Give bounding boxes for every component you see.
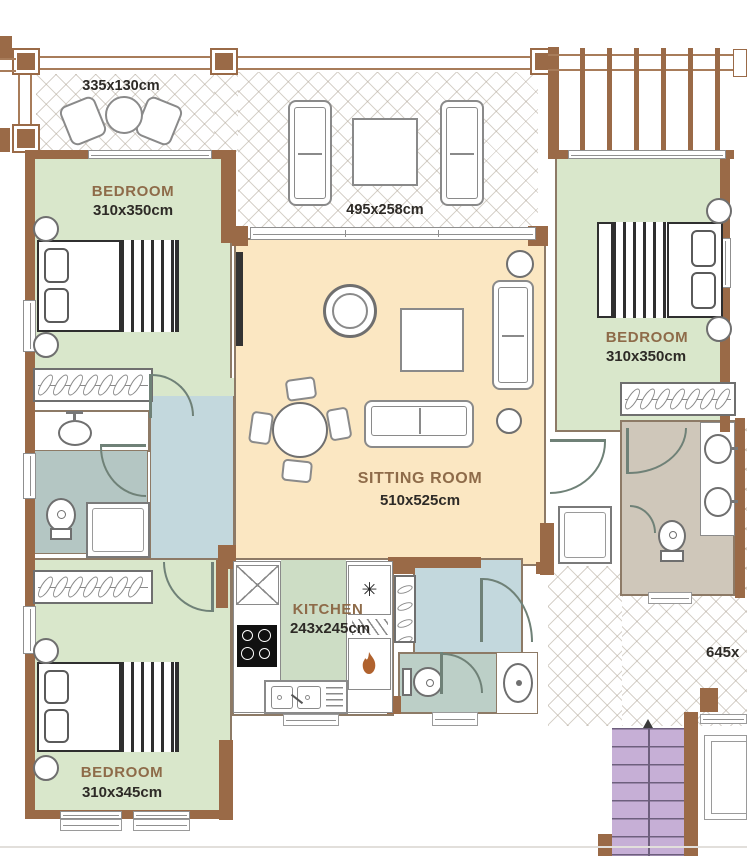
pergola-bar-1 (580, 48, 585, 152)
dining-chair-s (281, 458, 313, 483)
basin-right-2-tap-icon (730, 500, 738, 503)
window-sill-2 (133, 819, 190, 831)
wall-stairs-left-chunk (598, 834, 612, 856)
terrace-right-floor-b (622, 596, 747, 726)
dining-table (272, 402, 328, 458)
door-entrance-swing (483, 578, 533, 642)
dining-chair-w (248, 411, 274, 446)
br-room-shelf (700, 714, 747, 724)
wall-bottom-bedroom-bl (25, 810, 233, 819)
hall-closet (394, 575, 416, 643)
railing-left-side (18, 74, 32, 128)
basin-right-1 (704, 434, 732, 464)
bath-right-bench (648, 592, 692, 604)
plant-pot-2 (496, 408, 522, 434)
nightstand-r-2 (706, 316, 732, 342)
nightstand-bl-1 (33, 638, 59, 664)
guest-sink (503, 663, 533, 703)
room-dims-bedroom-r: 310x350cm (606, 348, 686, 365)
railing-top-center (238, 56, 536, 70)
pergola-bar-4 (661, 48, 666, 152)
toilet-left-bath (46, 498, 76, 532)
nightstand-bl-2 (33, 755, 59, 781)
toilet-right-bath (658, 520, 686, 552)
flame-icon (361, 652, 377, 679)
balcony-c-sofa-right (440, 100, 484, 206)
room-label-bedroom-tl: BEDROOM (92, 183, 175, 200)
railing-post-4 (14, 126, 38, 151)
pergola-bar-6 (715, 48, 720, 152)
wall-wc-right-chunk (536, 562, 553, 574)
railing-post-2 (212, 50, 236, 73)
railing-top-left (36, 56, 218, 70)
sitting-square-table (400, 308, 464, 372)
wardrobe-bedroom-bl (33, 570, 153, 604)
pergola-bar-2 (607, 48, 612, 152)
plant-pot-1 (506, 250, 534, 278)
wall-right-bath (735, 418, 745, 598)
pergola-bar-5 (688, 48, 693, 152)
pergola-left-wall (548, 47, 559, 155)
pergola-end-post (733, 49, 747, 77)
wall-terrace-chunk (700, 688, 718, 712)
balcony-tl-dims: 335x130cm (82, 78, 159, 94)
room-label-bedroom-r: BEDROOM (606, 329, 689, 346)
window-bedroom-tl-top (88, 150, 212, 159)
room-label-bedroom-bl: BEDROOM (81, 764, 164, 781)
sink-left-bath (58, 420, 92, 446)
window-bedroom-bl-bottom-2 (133, 811, 190, 819)
door-bedroom-r-swing (550, 442, 606, 494)
br-room-table (704, 735, 747, 820)
window-sitting-top (250, 227, 536, 240)
wall-stairs-right (684, 712, 698, 856)
room-dims-bedroom-bl: 310x345cm (82, 784, 162, 801)
window-bedroom-bl-bottom-1 (60, 811, 122, 819)
pergola-bar-3 (634, 48, 639, 152)
dining-chair-n (285, 376, 318, 402)
railing-stub-line-b (0, 70, 16, 72)
loveseat (364, 400, 474, 448)
railing-stub-left-b (0, 128, 10, 152)
wall-bedroom-bl-kitchen (216, 560, 228, 608)
bed-bedroom-bl (37, 662, 179, 752)
tap-left-bath-icon (73, 412, 76, 422)
cooktop (237, 625, 277, 667)
stairs-up-arrow-icon (643, 719, 653, 728)
shower-left-bath (86, 502, 150, 558)
window-sill-1 (60, 819, 122, 831)
shower-right-bath (558, 506, 612, 564)
balcony-c-sofa-left (288, 100, 332, 206)
terrace-right-floor-a (548, 566, 624, 726)
sofa-vertical (492, 280, 534, 390)
kitchen-bench-outside (283, 714, 339, 726)
door-bedroom-bl-leaf (211, 562, 214, 612)
balcony-c-table (352, 118, 418, 186)
staircase (612, 728, 684, 856)
nightstand-r-1 (706, 198, 732, 224)
wardrobe-bedroom-tl (33, 368, 153, 402)
kitchen-sink-unit (264, 680, 348, 714)
guest-toilet (413, 667, 443, 697)
railing-post-1 (14, 50, 38, 73)
tap-left-bath-bar-icon (66, 411, 83, 414)
room-dims-sitting: 510x525cm (380, 492, 460, 509)
armchair (323, 284, 377, 338)
nightstand-tl-1 (33, 216, 59, 242)
guest-toilet-tank (402, 668, 412, 696)
terrace-right-dims: 645x (706, 644, 739, 661)
toilet-left-tank (50, 528, 72, 540)
nightstand-tl-2 (33, 332, 59, 358)
balcony-round-table (105, 96, 143, 134)
balcony-c-dims: 495x258cm (346, 202, 423, 218)
page-edge-line (0, 846, 747, 848)
window-left-wall-2 (23, 453, 36, 499)
room-label-sitting: SITTING ROOM (358, 470, 483, 488)
wall-wc-left-chunk-a (390, 562, 415, 574)
toilet-right-tank (660, 550, 684, 562)
room-dims-bedroom-tl: 310x350cm (93, 202, 173, 219)
bed-bedroom-r (597, 222, 723, 318)
hallway-left (150, 396, 234, 564)
kitchen-cabinet-x (236, 565, 279, 605)
wall-sitting-tl-chunk (232, 226, 248, 246)
basin-right-1-tap-icon (730, 447, 738, 450)
basin-right-2 (704, 487, 732, 517)
bed-bedroom-tl (37, 240, 179, 332)
tv-unit (236, 252, 243, 346)
floor-plan: ✳ 335x130cm 495x258 (0, 0, 747, 856)
wc-bench-outside (432, 712, 478, 726)
window-bedroom-r-top (568, 150, 726, 159)
railing-stub-left-a (0, 36, 12, 60)
railing-stub-line-a (0, 58, 16, 60)
room-label-kitchen: KITCHEN (293, 601, 364, 618)
wall-bedroom-bl-right (219, 740, 233, 820)
wardrobe-bedroom-r (620, 382, 736, 416)
room-dims-kitchen: 243x245cm (290, 620, 370, 637)
